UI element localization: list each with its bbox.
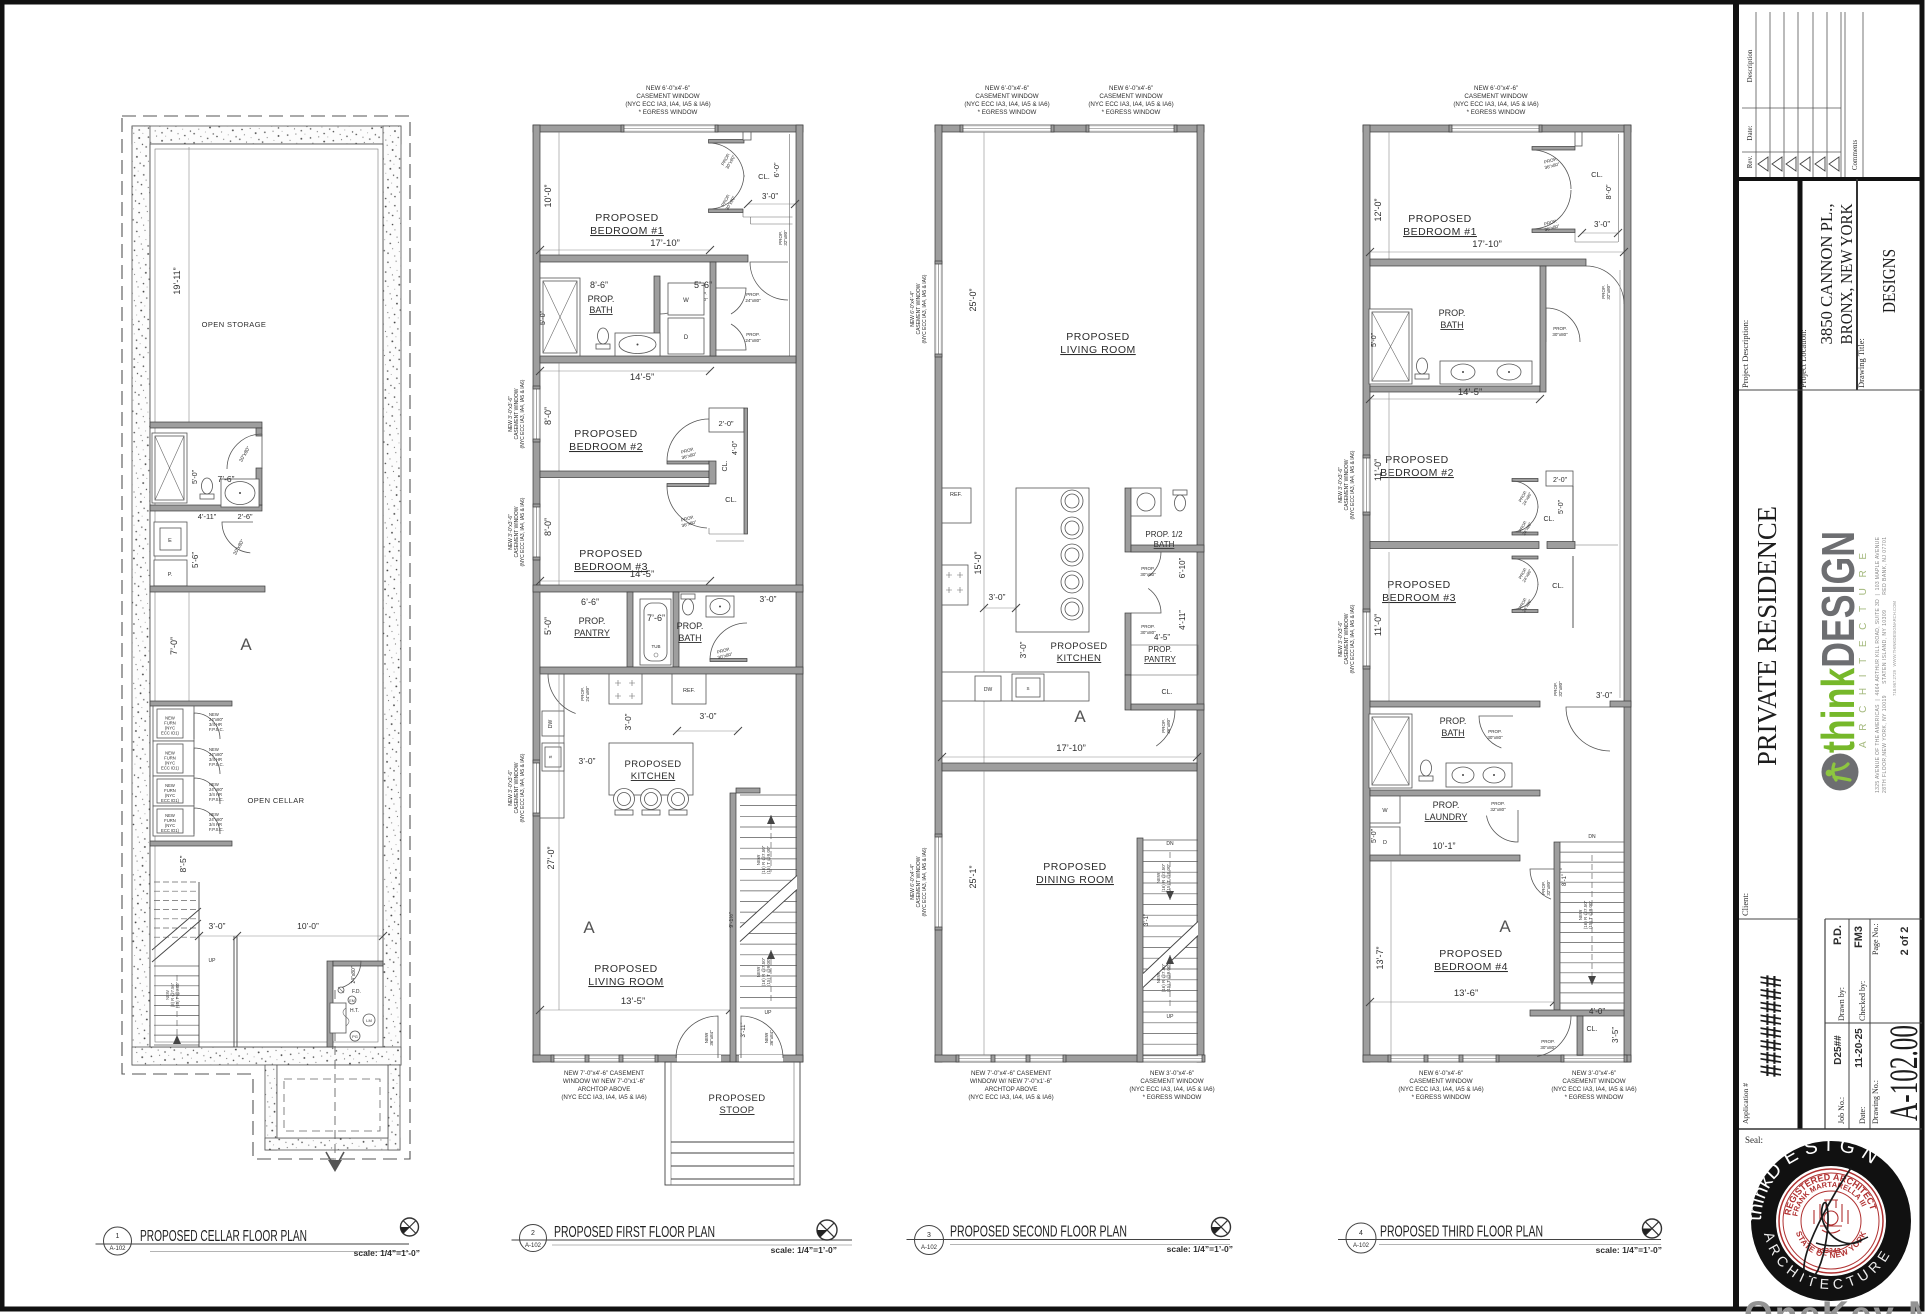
svg-text:PROP.: PROP. xyxy=(1148,645,1172,654)
svg-text:3’-11”: 3’-11” xyxy=(741,1023,747,1038)
svg-text:LIVING ROOM: LIVING ROOM xyxy=(588,976,664,988)
svg-text:1: 1 xyxy=(116,1233,120,1240)
svg-text:PROPOSED CELLAR FLOOR PLAN: PROPOSED CELLAR FLOOR PLAN xyxy=(140,1228,307,1245)
svg-text:Checked by:: Checked by: xyxy=(1858,981,1867,1021)
svg-text:D: D xyxy=(1383,840,1387,846)
svg-text:36”x84”: 36”x84” xyxy=(709,1030,714,1046)
svg-text:(NYC ECC IA3, IA4, IA5 & IA6): (NYC ECC IA3, IA4, IA5 & IA6) xyxy=(1350,604,1356,673)
svg-text:PROP.: PROP. xyxy=(579,616,606,626)
svg-text:14’-5”: 14’-5” xyxy=(630,372,654,383)
svg-text:PANTRY: PANTRY xyxy=(574,628,610,638)
svg-text:Page No.:: Page No.: xyxy=(1871,923,1880,955)
svg-text:Rev.: Rev. xyxy=(1746,155,1754,168)
svg-text:15’-0”: 15’-0” xyxy=(973,551,983,574)
svg-text:CASEMENT WINDOW: CASEMENT WINDOW xyxy=(1464,93,1527,100)
svg-text:* EGRESS WINDOW: * EGRESS WINDOW xyxy=(978,109,1037,116)
svg-text:32”x80”: 32”x80” xyxy=(783,230,788,246)
svg-text:PROP.: PROP. xyxy=(588,294,615,304)
svg-text:CL.: CL. xyxy=(722,461,729,472)
svg-text:NEW 6’-0”x4’-6”: NEW 6’-0”x4’-6” xyxy=(1474,85,1518,92)
svg-text:13’-7”: 13’-7” xyxy=(1375,946,1385,969)
svg-text:17’-10”: 17’-10” xyxy=(650,238,680,249)
svg-text:11’-0”: 11’-0” xyxy=(1373,614,1383,636)
svg-text:A-102: A-102 xyxy=(1353,1243,1370,1249)
svg-text:ARCHTOP ABOVE: ARCHTOP ABOVE xyxy=(985,1086,1038,1093)
svg-text:(15) T @9.00”: (15) T @9.00” xyxy=(1166,964,1171,992)
svg-text:27’-0”: 27’-0” xyxy=(546,846,556,869)
svg-text:scale: 1/4”=1’-0”: scale: 1/4”=1’-0” xyxy=(1596,1245,1662,1255)
svg-text:Job No.:: Job No.: xyxy=(1837,1097,1846,1124)
svg-text:ECC ID1): ECC ID1) xyxy=(161,766,180,771)
svg-text:NEW 7’-0”x4’-6” CASEMENT: NEW 7’-0”x4’-6” CASEMENT xyxy=(971,1070,1051,1077)
svg-text:* EGRESS WINDOW: * EGRESS WINDOW xyxy=(1467,109,1526,116)
svg-text:6’-6”: 6’-6” xyxy=(581,597,599,607)
svg-text:NEW 3’-0”x4’-6”: NEW 3’-0”x4’-6” xyxy=(1572,1070,1616,1077)
svg-text:(NYC ECC IA3, IA4, IA5 & IA6): (NYC ECC IA3, IA4, IA5 & IA6) xyxy=(1551,1086,1636,1093)
svg-text:F.P.S.C.: F.P.S.C. xyxy=(209,827,224,832)
svg-text:5’-0”: 5’-0” xyxy=(540,310,547,325)
svg-text:BATH: BATH xyxy=(678,633,701,643)
svg-text:ECC ID1): ECC ID1) xyxy=(161,731,180,736)
svg-text:PROPOSED FIRST FLOOR PLAN: PROPOSED FIRST FLOOR PLAN xyxy=(554,1224,715,1241)
svg-text:3’-0”: 3’-0” xyxy=(1596,691,1612,700)
svg-text:CASEMENT WINDOW: CASEMENT WINDOW xyxy=(1409,1078,1472,1085)
svg-text:A-102.00: A-102.00 xyxy=(1881,1025,1925,1121)
svg-text:F.P.S.C.: F.P.S.C. xyxy=(209,797,224,802)
svg-text:KITCHEN: KITCHEN xyxy=(1057,653,1102,664)
svg-text:BATH: BATH xyxy=(1440,320,1463,330)
svg-text:36”x80”: 36”x80” xyxy=(1166,718,1171,734)
svg-text:4’-0”: 4’-0” xyxy=(1589,1007,1605,1016)
svg-text:3: 3 xyxy=(927,1232,931,1239)
svg-text:REF.: REF. xyxy=(683,688,695,694)
svg-text:DN: DN xyxy=(1588,834,1596,840)
svg-text:(15) T @9.00”: (15) T @9.00” xyxy=(766,958,771,986)
svg-text:12’-0”: 12’-0” xyxy=(1373,198,1383,221)
svg-text:NEW 6’-0”x4’-6”: NEW 6’-0”x4’-6” xyxy=(1419,1070,1463,1077)
svg-text:S: S xyxy=(1026,686,1029,691)
svg-text:2 of 2: 2 of 2 xyxy=(1899,927,1911,956)
svg-text:WINDOW W/ NEW 7’-0”x1’-6”: WINDOW W/ NEW 7’-0”x1’-6” xyxy=(563,1078,645,1085)
svg-text:(NYC ECC IA3, IA4, IA5 & IA6): (NYC ECC IA3, IA4, IA5 & IA6) xyxy=(561,1094,646,1101)
svg-text:PROP.: PROP. xyxy=(1439,308,1466,318)
svg-text:CL.: CL. xyxy=(1591,170,1603,179)
svg-text:DW: DW xyxy=(548,720,554,729)
svg-text:scale: 1/4”=1’-0”: scale: 1/4”=1’-0” xyxy=(354,1248,420,1258)
svg-text:NEW 6’-0”x4’-6”: NEW 6’-0”x4’-6” xyxy=(985,85,1029,92)
svg-text:3’-5”: 3’-5” xyxy=(1611,1027,1620,1043)
svg-text:Project Description:: Project Description: xyxy=(1740,320,1750,388)
svg-text:F.D.: F.D. xyxy=(352,989,361,995)
svg-text:CL.: CL. xyxy=(1587,1026,1598,1033)
svg-text:2’-6”: 2’-6” xyxy=(237,512,253,521)
svg-text:17’-10”: 17’-10” xyxy=(1056,743,1086,754)
svg-text:Drawing No.:: Drawing No.: xyxy=(1871,1080,1880,1124)
svg-text:CASEMENT WINDOW: CASEMENT WINDOW xyxy=(636,93,699,100)
svg-text:24”x80”: 24”x80” xyxy=(745,298,761,303)
svg-text:ARCHTOP ABOVE: ARCHTOP ABOVE xyxy=(578,1086,631,1093)
svg-text:PG: PG xyxy=(352,1034,358,1039)
svg-text:2’-0”: 2’-0” xyxy=(718,419,734,428)
svg-text:Date:: Date: xyxy=(1858,1107,1867,1124)
svg-text:30”x80”: 30”x80” xyxy=(1140,572,1156,577)
svg-text:CASEMENT WINDOW: CASEMENT WINDOW xyxy=(1099,93,1162,100)
svg-text:(15) T @9.00”: (15) T @9.00” xyxy=(175,981,180,1008)
svg-text:Seal:: Seal: xyxy=(1745,1135,1763,1145)
svg-text:PROPOSED: PROPOSED xyxy=(708,1093,765,1104)
svg-text:(NYC ECC IA3, IA4, IA5 & IA6): (NYC ECC IA3, IA4, IA5 & IA6) xyxy=(625,101,710,108)
svg-text:718.967.2729 WWW.THINKDESIGN: 718.967.2729 WWW.THINKDESIGNARCH.COM xyxy=(1892,601,1897,696)
svg-text:Description: Description xyxy=(1746,49,1754,82)
svg-text:(NYC ECC IA3, IA4, IA5 & IA6): (NYC ECC IA3, IA4, IA5 & IA6) xyxy=(1129,1086,1214,1093)
svg-text:Drawn by:: Drawn by: xyxy=(1837,987,1846,1021)
svg-text:Project Location:: Project Location: xyxy=(1798,329,1808,388)
svg-text:CASEMENT WINDOW: CASEMENT WINDOW xyxy=(975,93,1038,100)
svg-text:* EGRESS WINDOW: * EGRESS WINDOW xyxy=(1143,1094,1202,1101)
svg-text:S: S xyxy=(548,755,553,758)
svg-text:P.: P. xyxy=(168,572,173,578)
svg-text:* EGRESS WINDOW: * EGRESS WINDOW xyxy=(1102,109,1161,116)
svg-text:Comments: Comments xyxy=(1851,140,1859,171)
svg-text:BEDROOM #1: BEDROOM #1 xyxy=(1403,226,1477,238)
svg-text:5’-0”: 5’-0” xyxy=(1371,332,1378,347)
svg-text:UP: UP xyxy=(209,958,217,964)
svg-text:13’-5”: 13’-5” xyxy=(621,996,645,1007)
svg-text:3’-0”: 3’-0” xyxy=(623,713,633,730)
svg-text:A-102: A-102 xyxy=(525,1243,542,1249)
svg-text:OPEN CELLAR: OPEN CELLAR xyxy=(248,796,305,805)
svg-text:scale: 1/4”=1’-0”: scale: 1/4”=1’-0” xyxy=(1167,1244,1233,1254)
svg-text:3’-0”: 3’-0” xyxy=(1018,641,1028,658)
svg-text:(15) T @9.00”: (15) T @9.00” xyxy=(766,846,771,874)
svg-text:* EGRESS WINDOW: * EGRESS WINDOW xyxy=(1565,1094,1624,1101)
svg-text:Application #: Application # xyxy=(1741,1083,1750,1124)
svg-text:PROP.: PROP. xyxy=(746,332,759,337)
svg-text:5’-0”: 5’-0” xyxy=(1558,499,1565,514)
svg-text:PROPOSED: PROPOSED xyxy=(574,428,638,440)
svg-text:14’-5”: 14’-5” xyxy=(630,569,654,580)
svg-text:PROP.: PROP. xyxy=(1433,800,1460,810)
svg-text:36”x84”: 36”x84” xyxy=(769,1030,774,1046)
svg-text:32”x80”: 32”x80” xyxy=(1546,880,1551,896)
svg-text:########: ######## xyxy=(1755,975,1788,1077)
svg-text:10’-0”: 10’-0” xyxy=(543,184,553,207)
svg-text:PROPOSED THIRD FLOOR PLAN: PROPOSED THIRD FLOOR PLAN xyxy=(1380,1224,1543,1241)
svg-text:scale: 1/4”=1’-0”: scale: 1/4”=1’-0” xyxy=(771,1245,837,1255)
svg-text:* EGRESS WINDOW: * EGRESS WINDOW xyxy=(1412,1094,1471,1101)
svg-text:BEDROOM #2: BEDROOM #2 xyxy=(1380,467,1454,479)
svg-text:PROPOSED: PROPOSED xyxy=(1385,454,1449,466)
svg-text:PROPOSED: PROPOSED xyxy=(579,548,643,560)
svg-text:5’-6”: 5’-6” xyxy=(694,280,712,290)
svg-text:3’-0”: 3’-0” xyxy=(762,192,778,201)
svg-text:30”x80”: 30”x80” xyxy=(1552,332,1568,337)
svg-text:30”x80”: 30”x80” xyxy=(1140,630,1156,635)
svg-text:(NYC ECC IA3, IA4, IA5 & IA6): (NYC ECC IA3, IA4, IA5 & IA6) xyxy=(520,497,526,566)
svg-text:PROPOSED: PROPOSED xyxy=(1050,641,1107,652)
svg-text:19’-11”: 19’-11” xyxy=(172,267,182,294)
svg-text:32”x80”: 32”x80” xyxy=(1606,284,1611,300)
svg-text:P.D.: P.D. xyxy=(1832,925,1844,945)
svg-text:25’-1”: 25’-1” xyxy=(968,865,978,888)
svg-text:30”x80”: 30”x80” xyxy=(1487,735,1503,740)
svg-text:EM: EM xyxy=(349,999,354,1003)
svg-text:8’-0”: 8’-0” xyxy=(543,518,553,536)
svg-text:(NYC ECC IA3, IA4, IA5 & IA6): (NYC ECC IA3, IA4, IA5 & IA6) xyxy=(520,379,526,448)
svg-text:(NYC ECC IA3, IA4, IA5 & IA6): (NYC ECC IA3, IA4, IA5 & IA6) xyxy=(1398,1086,1483,1093)
svg-text:Drawing Title:: Drawing Title: xyxy=(1856,338,1866,388)
svg-text:3’-0”: 3’-0” xyxy=(578,756,595,766)
svg-text:(NYC ECC IA3, IA4, IA5 & IA6): (NYC ECC IA3, IA4, IA5 & IA6) xyxy=(1453,101,1538,108)
svg-text:LAUNDRY: LAUNDRY xyxy=(1425,812,1468,822)
svg-text:* EGRESS WINDOW: * EGRESS WINDOW xyxy=(639,109,698,116)
svg-text:(15) T @9.00”: (15) T @9.00” xyxy=(1588,901,1593,929)
svg-text:PANTRY: PANTRY xyxy=(1144,655,1176,664)
svg-text:thinkDESIGN: thinkDESIGN xyxy=(1812,531,1864,753)
svg-text:PROP.: PROP. xyxy=(1541,1039,1554,1044)
svg-text:BEDROOM #2: BEDROOM #2 xyxy=(569,441,643,453)
svg-text:CL.: CL. xyxy=(1552,581,1564,590)
svg-text:3’-0”: 3’-0” xyxy=(1594,220,1610,229)
svg-text:6’-0”: 6’-0” xyxy=(772,162,781,178)
svg-text:(NYC ECC IA3, IA4, IA5 & IA6): (NYC ECC IA3, IA4, IA5 & IA6) xyxy=(964,101,1049,108)
svg-text:(NYC ECC IA3, IA4, IA5 & IA6): (NYC ECC IA3, IA4, IA5 & IA6) xyxy=(1350,450,1356,519)
svg-text:2: 2 xyxy=(531,1230,535,1237)
svg-text:PROPOSED: PROPOSED xyxy=(594,963,658,975)
svg-text:9’-1½”: 9’-1½” xyxy=(728,912,735,928)
svg-text:13’-6”: 13’-6” xyxy=(1454,988,1478,999)
svg-text:CASEMENT WINDOW: CASEMENT WINDOW xyxy=(1140,1078,1203,1085)
svg-text:D: D xyxy=(684,335,689,341)
svg-text:PRIVATE RESIDENCE: PRIVATE RESIDENCE xyxy=(1752,506,1782,766)
svg-text:UP: UP xyxy=(1167,1014,1175,1020)
svg-text:NEW 6’-0”x4’-6”: NEW 6’-0”x4’-6” xyxy=(646,85,690,92)
svg-text:CASEMENT WINDOW: CASEMENT WINDOW xyxy=(1562,1078,1625,1085)
svg-text:PROP.: PROP. xyxy=(1440,716,1467,726)
svg-text:3850 CANNON PL.,: 3850 CANNON PL., xyxy=(1817,204,1836,345)
svg-text:5’-0”: 5’-0” xyxy=(1371,828,1378,843)
svg-text:KITCHEN: KITCHEN xyxy=(631,771,676,782)
svg-text:PROPOSED: PROPOSED xyxy=(1043,861,1107,873)
svg-text:REF.: REF. xyxy=(950,492,962,498)
svg-text:(NYC ECC IA3, IA4, IA5 & IA6): (NYC ECC IA3, IA4, IA5 & IA6) xyxy=(922,274,928,343)
svg-text:LM: LM xyxy=(366,1018,372,1023)
svg-text:CL.: CL. xyxy=(1544,516,1555,523)
svg-text:LIVING ROOM: LIVING ROOM xyxy=(1060,344,1136,356)
svg-text:4’-11”: 4’-11” xyxy=(1178,610,1187,630)
svg-text:BATH: BATH xyxy=(1441,728,1464,738)
svg-text:PROP.: PROP. xyxy=(677,621,704,631)
svg-text:3’-0”: 3’-0” xyxy=(208,921,225,931)
svg-text:14’-5”: 14’-5” xyxy=(1458,387,1482,398)
svg-text:PROP. 1/2: PROP. 1/2 xyxy=(1145,530,1183,539)
svg-text:(15) T @9.00”: (15) T @9.00” xyxy=(1166,864,1171,892)
svg-text:DW: DW xyxy=(984,687,993,693)
svg-text:PROP.: PROP. xyxy=(746,292,759,297)
svg-text:BATH: BATH xyxy=(1154,540,1175,549)
svg-text:F.P.S.C.: F.P.S.C. xyxy=(209,762,224,767)
svg-text:4’-5”: 4’-5” xyxy=(1154,633,1170,642)
svg-text:(NYC ECC IA3, IA4, IA5 & IA6): (NYC ECC IA3, IA4, IA5 & IA6) xyxy=(520,753,526,822)
svg-text:CL.: CL. xyxy=(725,495,737,504)
svg-text:Date:: Date: xyxy=(1746,125,1754,140)
svg-text:PROPOSED: PROPOSED xyxy=(624,759,681,770)
svg-text:PROP.: PROP. xyxy=(1488,729,1501,734)
svg-text:3’-0”: 3’-0” xyxy=(759,594,776,604)
svg-text:(NYC ECC IA3, IA4, IA5 & IA6): (NYC ECC IA3, IA4, IA5 & IA6) xyxy=(922,847,928,916)
svg-text:D25##: D25## xyxy=(1833,1035,1844,1065)
svg-text:3’-0”: 3’-0” xyxy=(988,592,1005,602)
svg-text:A-102: A-102 xyxy=(921,1245,938,1251)
svg-text:PROP.: PROP. xyxy=(1141,624,1154,629)
svg-text:11’-0”: 11’-0” xyxy=(1373,459,1383,481)
svg-text:UP: UP xyxy=(765,1010,773,1016)
svg-text:NEW 6’-0”x4’-6”: NEW 6’-0”x4’-6” xyxy=(1109,85,1153,92)
svg-text:A: A xyxy=(240,635,252,654)
svg-text:24”x80”: 24”x80” xyxy=(351,966,357,983)
svg-text:4’-11”: 4’-11” xyxy=(198,512,217,521)
svg-text:PROPOSED SECOND FLOOR PLAN: PROPOSED SECOND FLOOR PLAN xyxy=(950,1224,1127,1241)
svg-text:DESIGNS: DESIGNS xyxy=(1879,249,1899,313)
svg-text:H.T.: H.T. xyxy=(350,1008,359,1014)
svg-text:32”x80”: 32”x80” xyxy=(1558,681,1563,697)
svg-text:1325 AVENUE OF THE AMERICAS |: 1325 AVENUE OF THE AMERICAS | 4664 ARTHU… xyxy=(1875,536,1881,793)
svg-text:8’-6”: 8’-6” xyxy=(590,280,608,290)
svg-text:11-20-25: 11-20-25 xyxy=(1854,1028,1865,1068)
svg-text:7’-6”: 7’-6” xyxy=(647,613,665,623)
svg-text:30”x80”: 30”x80” xyxy=(1540,1045,1556,1050)
svg-text:PROP.: PROP. xyxy=(1141,566,1154,571)
svg-text:4’-0”: 4’-0” xyxy=(732,440,739,455)
svg-text:32”x80”: 32”x80” xyxy=(1490,807,1506,812)
svg-text:8’-0”: 8’-0” xyxy=(543,407,553,425)
svg-text:25’-0”: 25’-0” xyxy=(968,288,978,311)
svg-text:NEW 3’-0”x4’-6”: NEW 3’-0”x4’-6” xyxy=(1150,1070,1194,1077)
svg-text:OPEN STORAGE: OPEN STORAGE xyxy=(202,320,267,329)
svg-text:8’-5”: 8’-5” xyxy=(178,855,188,872)
svg-text:BEDROOM #4: BEDROOM #4 xyxy=(1434,961,1508,973)
svg-text:FM3: FM3 xyxy=(1853,926,1865,948)
svg-text:(NYC ECC IA3, IA4, IA5 & IA6): (NYC ECC IA3, IA4, IA5 & IA6) xyxy=(968,1094,1053,1101)
svg-text:A: A xyxy=(1074,707,1086,726)
svg-text:ECC ID1): ECC ID1) xyxy=(161,798,180,803)
svg-text:(NYC ECC IA3, IA4, IA5 & IA6): (NYC ECC IA3, IA4, IA5 & IA6) xyxy=(1088,101,1173,108)
svg-text:3’-0”: 3’-0” xyxy=(699,711,716,721)
svg-text:BATH: BATH xyxy=(589,305,612,315)
svg-text:E: E xyxy=(168,538,172,544)
svg-text:W: W xyxy=(683,298,689,304)
svg-text:CL.: CL. xyxy=(1162,689,1173,696)
svg-text:033343: 033343 xyxy=(1817,1248,1840,1255)
svg-text:10’-0”: 10’-0” xyxy=(297,921,319,931)
svg-text:3’-1”: 3’-1” xyxy=(1144,914,1150,926)
svg-text:CL.: CL. xyxy=(758,172,770,181)
svg-text:DINING ROOM: DINING ROOM xyxy=(1036,874,1114,886)
svg-text:5’-0”: 5’-0” xyxy=(543,617,553,635)
svg-text:STOOP: STOOP xyxy=(719,1105,754,1116)
svg-text:5’-6”: 5’-6” xyxy=(191,552,200,568)
svg-text:5’-0”: 5’-0” xyxy=(192,469,199,484)
svg-text:F.P.S.C.: F.P.S.C. xyxy=(209,727,224,732)
svg-text:OneKey MLS: OneKey MLS xyxy=(1744,1294,1925,1314)
svg-text:24”x80”: 24”x80” xyxy=(585,686,590,702)
svg-text:17’-10”: 17’-10” xyxy=(1472,239,1502,250)
svg-text:TUB: TUB xyxy=(652,644,661,649)
svg-text:4: 4 xyxy=(1359,1230,1363,1237)
svg-text:28TH FLOOR,NEW YORK, NY 10019: 28TH FLOOR,NEW YORK, NY 10019 STATEN ISL… xyxy=(1882,537,1888,793)
svg-text:2’-0”: 2’-0” xyxy=(1553,477,1568,484)
svg-text:ARCHITECTURE: ARCHITECTURE xyxy=(1858,543,1869,748)
svg-text:6’-10”: 6’-10” xyxy=(1178,557,1187,578)
svg-text:7’-0”: 7’-0” xyxy=(169,637,179,655)
svg-text:A: A xyxy=(1499,917,1511,936)
svg-text:A-102: A-102 xyxy=(109,1246,126,1252)
svg-text:PROPOSED: PROPOSED xyxy=(1439,948,1503,960)
svg-text:DN: DN xyxy=(1166,841,1174,847)
svg-text:10’-1”: 10’-1” xyxy=(1432,841,1455,851)
svg-text:PROPOSED: PROPOSED xyxy=(595,212,659,224)
svg-text:PROP.: PROP. xyxy=(1491,801,1504,806)
svg-text:NEW 7’-0”x4’-6” CASEMENT: NEW 7’-0”x4’-6” CASEMENT xyxy=(564,1070,644,1077)
svg-text:W: W xyxy=(1382,808,1388,814)
svg-text:BRONX, NEW YORK: BRONX, NEW YORK xyxy=(1837,203,1856,345)
svg-text:PROPOSED: PROPOSED xyxy=(1408,213,1472,225)
svg-text:A: A xyxy=(583,918,595,937)
svg-text:24”x80”: 24”x80” xyxy=(745,338,761,343)
svg-text:PROP.: PROP. xyxy=(1553,326,1566,331)
svg-text:WINDOW W/ NEW 7’-0”x1’-6”: WINDOW W/ NEW 7’-0”x1’-6” xyxy=(970,1078,1052,1085)
svg-text:ECC ID1): ECC ID1) xyxy=(161,828,180,833)
svg-text:PROPOSED: PROPOSED xyxy=(1387,579,1451,591)
svg-text:BEDROOM #3: BEDROOM #3 xyxy=(1382,592,1456,604)
svg-text:Client:: Client: xyxy=(1740,893,1750,916)
svg-text:7’-6”: 7’-6” xyxy=(217,474,234,484)
svg-text:8’-0”: 8’-0” xyxy=(1604,184,1613,200)
svg-text:8’-1”: 8’-1” xyxy=(1562,874,1568,886)
svg-text:PROPOSED: PROPOSED xyxy=(1066,331,1130,343)
svg-text:BEDROOM #1: BEDROOM #1 xyxy=(590,225,664,237)
